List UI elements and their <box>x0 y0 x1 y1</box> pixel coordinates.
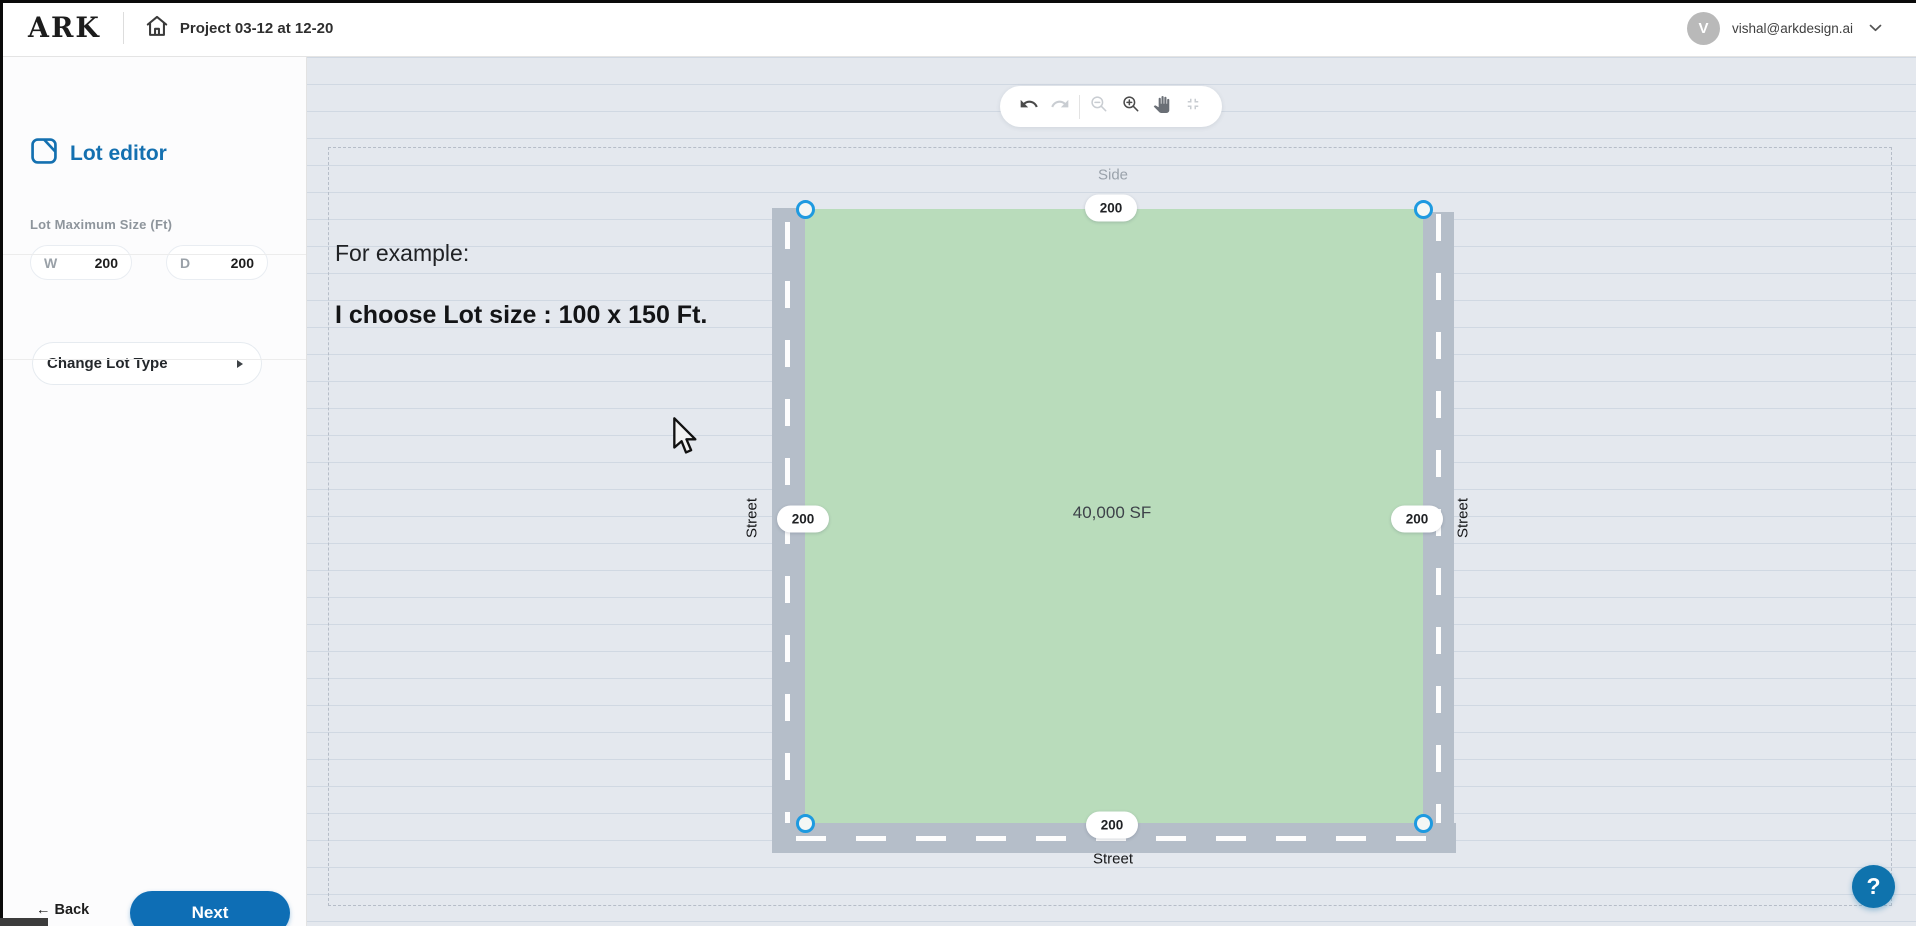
lot-handle-top-right[interactable] <box>1414 200 1433 219</box>
panel-title: Lot editor <box>30 137 167 170</box>
user-email: vishal@arkdesign.ai <box>1732 21 1853 36</box>
street-label-right: Street <box>1455 498 1472 538</box>
avatar[interactable]: V <box>1687 12 1720 45</box>
lot-handle-bottom-left[interactable] <box>796 814 815 833</box>
width-field-label: W <box>44 255 57 271</box>
redo-button[interactable] <box>1048 95 1072 119</box>
street-label-bottom: Street <box>1093 851 1133 868</box>
sidebar-divider <box>0 254 306 255</box>
topbar-divider <box>123 12 124 44</box>
pan-button[interactable] <box>1150 95 1174 119</box>
lot-editor-panel: Lot editor Lot Maximum Size (Ft) W D Cha… <box>0 57 307 926</box>
fit-screen-icon <box>1184 95 1202 118</box>
canvas-toolbar <box>1000 86 1222 127</box>
ark-logo[interactable]: ARK <box>28 12 101 44</box>
screen-edge-top <box>0 0 1916 3</box>
chevron-right-icon <box>237 360 243 368</box>
side-label: Side <box>1098 167 1128 184</box>
screen-corner-artifact <box>0 918 48 926</box>
fit-screen-button[interactable] <box>1181 95 1205 119</box>
depth-input[interactable] <box>208 255 254 271</box>
pan-hand-icon <box>1153 96 1170 118</box>
account-menu[interactable]: V vishal@arkdesign.ai <box>1687 12 1882 45</box>
help-button[interactable]: ? <box>1852 865 1895 908</box>
toolbar-divider <box>1079 95 1080 119</box>
road-right <box>1423 212 1454 853</box>
street-label-left: Street <box>744 498 761 538</box>
redo-icon <box>1050 94 1070 119</box>
lot-size-inputs: W D <box>30 245 268 280</box>
example-lot-size-text: I choose Lot size : 100 x 150 Ft. <box>335 301 707 330</box>
app-window: ARK Project 03-12 at 12-20 V vishal@arkd… <box>0 0 1916 926</box>
lot-max-size-label: Lot Maximum Size (Ft) <box>30 217 172 232</box>
sidebar-divider <box>0 359 306 360</box>
zoom-out-icon <box>1089 94 1109 119</box>
zoom-in-button[interactable] <box>1119 95 1143 119</box>
back-link[interactable]: ← Back <box>36 902 89 918</box>
lot-area-label: 40,000 SF <box>1073 503 1151 523</box>
depth-field[interactable]: D <box>166 245 268 280</box>
change-lot-type-label: Change Lot Type <box>47 355 168 372</box>
panel-title-label: Lot editor <box>70 142 167 166</box>
undo-button[interactable] <box>1017 95 1041 119</box>
dimension-badge-top[interactable]: 200 <box>1085 195 1137 222</box>
zoom-out-button[interactable] <box>1087 95 1111 119</box>
screen-edge-left <box>0 0 3 926</box>
lot-editor-icon <box>30 137 58 170</box>
project-title: Project 03-12 at 12-20 <box>180 20 333 37</box>
lot-handle-top-left[interactable] <box>796 200 815 219</box>
dimension-badge-right[interactable]: 200 <box>1391 506 1443 533</box>
lot-handle-bottom-right[interactable] <box>1414 814 1433 833</box>
home-button[interactable] <box>140 11 174 45</box>
undo-icon <box>1019 94 1039 119</box>
top-bar: ARK Project 03-12 at 12-20 V vishal@arkd… <box>0 0 1916 57</box>
dimension-badge-bottom[interactable]: 200 <box>1086 812 1138 839</box>
width-input[interactable] <box>72 255 118 271</box>
home-icon <box>144 13 170 44</box>
width-field[interactable]: W <box>30 245 132 280</box>
depth-field-label: D <box>180 255 190 271</box>
change-lot-type-button[interactable]: Change Lot Type <box>32 342 262 385</box>
example-intro-text: For example: <box>335 240 469 267</box>
zoom-in-icon <box>1121 94 1141 119</box>
dimension-badge-left[interactable]: 200 <box>777 506 829 533</box>
chevron-down-icon[interactable] <box>1869 24 1882 32</box>
next-button[interactable]: Next <box>130 891 290 926</box>
